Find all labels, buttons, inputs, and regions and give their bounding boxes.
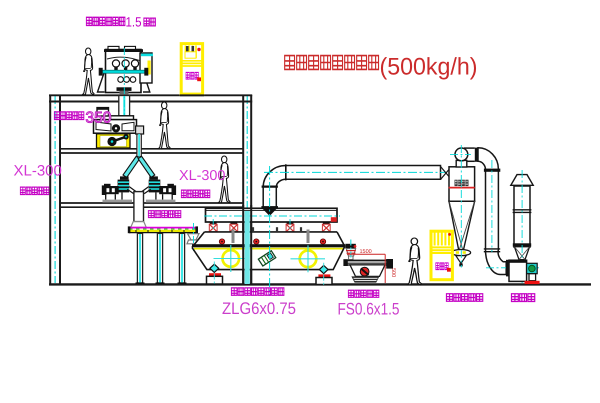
svg-text:1500: 1500 (360, 249, 372, 255)
svg-text:350: 350 (86, 110, 112, 127)
svg-text:FS0.6x1.5: FS0.6x1.5 (338, 300, 400, 319)
svg-text:XL-300: XL-300 (179, 168, 225, 184)
svg-text:XL-300: XL-300 (14, 163, 62, 180)
svg-text:1.5: 1.5 (126, 15, 142, 30)
svg-text:500: 500 (390, 268, 396, 277)
svg-text:(500kg/h): (500kg/h) (380, 54, 478, 81)
svg-text:ZLG6x0.75: ZLG6x0.75 (222, 299, 296, 318)
